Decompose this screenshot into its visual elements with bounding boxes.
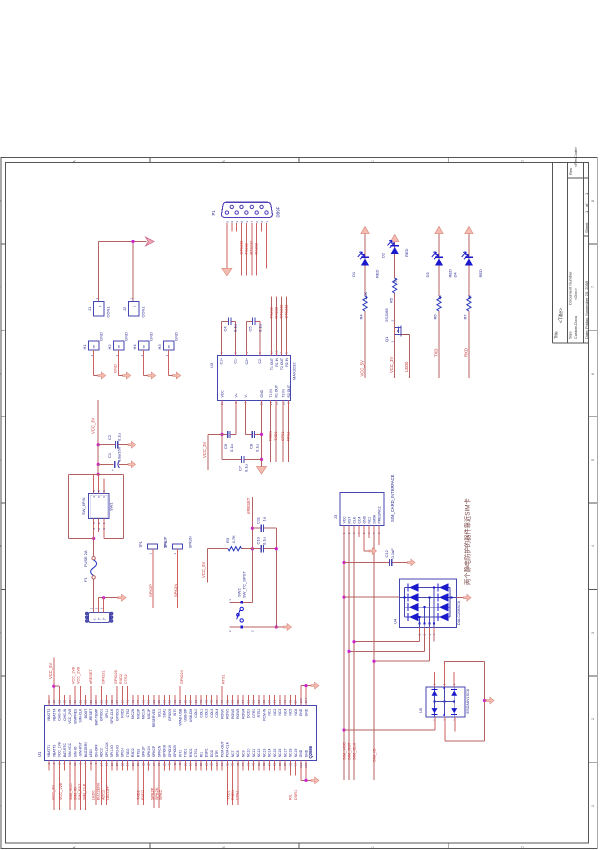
svg-text:D2: D2 (380, 252, 385, 258)
svg-text:SPK2N: SPK2N (189, 536, 193, 548)
svg-text:Custom-Docu: Custom-Docu (574, 316, 578, 339)
svg-text:LED0: LED0 (89, 749, 93, 758)
svg-text:U5: U5 (418, 707, 423, 713)
svg-text:H3: H3 (157, 344, 162, 350)
svg-text:NC1: NC1 (268, 709, 272, 716)
svg-text:BOOT: BOOT (84, 709, 88, 719)
svg-text:NC1: NC1 (367, 517, 371, 524)
svg-text:R6: R6 (433, 314, 438, 320)
svg-text:≡: ≡ (92, 618, 96, 620)
svg-text:1K: 1K (393, 278, 398, 283)
svg-text:CON1: CON1 (106, 306, 111, 318)
svg-text:VCC_1V8: VCC_1V8 (58, 742, 62, 757)
svg-text:CTS2: CTS2 (124, 674, 128, 684)
svg-text:8: 8 (0, 200, 2, 202)
svg-text:GPIO24: GPIO24 (180, 670, 184, 684)
svg-text:ADC2: ADC2 (102, 790, 106, 800)
svg-text:F1: F1 (83, 577, 88, 582)
svg-text:7: 7 (591, 286, 595, 288)
svg-text:VCC_5V: VCC_5V (48, 663, 53, 679)
svg-text:C2-: C2- (258, 358, 262, 363)
svg-text:LED0: LED0 (404, 361, 409, 372)
svg-text:U4: U4 (392, 618, 397, 624)
svg-text:C5: C5 (248, 326, 253, 332)
svg-text:ADC2: ADC2 (100, 748, 104, 757)
svg-text:SW_TC_SPST: SW_TC_SPST (242, 571, 247, 598)
svg-text:7: 7 (0, 286, 2, 288)
svg-text:NC3: NC3 (278, 709, 282, 716)
svg-text:SPKCP: SPKCP (152, 745, 156, 757)
svg-text:MIC2P: MIC2P (136, 708, 140, 719)
svg-text:DCD: DCD (210, 749, 214, 757)
svg-text:MAX3232: MAX3232 (291, 362, 296, 380)
svg-text:SPK2P: SPK2P (151, 787, 155, 800)
svg-text:NC4: NC4 (283, 709, 287, 716)
svg-text:RTS1: RTS1 (257, 709, 261, 718)
svg-text:T2 IN: T2 IN (282, 389, 286, 398)
svg-text:CTS1: CTS1 (281, 431, 285, 441)
svg-text:SPK1N: SPK1N (147, 746, 151, 758)
svg-text:VCC_2V8: VCC_2V8 (77, 667, 81, 684)
svg-text:GPIO21: GPIO21 (101, 670, 105, 684)
svg-text:Document Number: Document Number (568, 271, 573, 305)
svg-text:C1: C1 (107, 452, 112, 458)
svg-text:GPIO01: GPIO01 (100, 709, 104, 721)
svg-text:1: 1 (0, 805, 2, 807)
svg-text:GND: GND (299, 749, 303, 757)
svg-text:SDA1: SDA1 (163, 709, 167, 718)
svg-text:GPIO25: GPIO25 (173, 745, 177, 757)
svg-text:USB-DM: USB-DM (189, 709, 193, 723)
svg-text:T2 OUT: T2 OUT (280, 358, 284, 370)
svg-text:R1 OUT: R1 OUT (275, 385, 279, 397)
svg-text:TP: TP (117, 345, 121, 349)
svg-text:GND: GND (124, 332, 129, 341)
svg-text:TP2: TP2 (164, 541, 168, 548)
svg-text:0.1u: 0.1u (254, 444, 259, 452)
svg-text:U3: U3 (209, 362, 214, 368)
svg-text:VCC_2V8: VCC_2V8 (68, 709, 72, 724)
svg-text:C6: C6 (223, 443, 228, 449)
svg-text:GND: GND (174, 332, 179, 341)
svg-text:nRESET: nRESET (89, 669, 93, 684)
svg-text:SPK2P: SPK2P (148, 584, 153, 597)
svg-text:T1 OUT: T1 OUT (270, 358, 274, 370)
svg-text:NC9: NC9 (241, 750, 245, 757)
svg-text:H1: H1 (82, 344, 87, 350)
svg-text:TXD: TXD (434, 349, 439, 357)
svg-text:GND: GND (304, 708, 308, 716)
svg-text:DTR: DTR (215, 750, 219, 758)
svg-text:ROW1: ROW1 (226, 709, 230, 719)
svg-text:C1-: C1- (234, 358, 238, 363)
svg-text:RX232: RX232 (274, 307, 278, 319)
svg-text:D: D (520, 160, 524, 163)
svg-text:SIMPRES: SIMPRES (73, 708, 77, 724)
svg-text:SIM_CLK: SIM_CLK (352, 743, 357, 760)
svg-text:NC7: NC7 (231, 750, 235, 757)
svg-text:RESERVED: RESERVED (152, 708, 156, 727)
svg-text:CHG-IN: CHG-IN (63, 708, 67, 721)
svg-text:INT0: INT0 (173, 709, 177, 716)
svg-text:VCC_3V: VCC_3V (389, 357, 394, 373)
svg-text:CTS1: CTS1 (194, 749, 198, 758)
svg-text:DSR1: DSR1 (294, 790, 298, 800)
svg-text:4: 4 (591, 545, 595, 547)
svg-text:TXD2: TXD2 (137, 790, 141, 800)
svg-text:RED: RED (404, 248, 409, 257)
svg-text:SIM_IO: SIM_IO (372, 748, 377, 762)
svg-text:NC12: NC12 (257, 749, 261, 758)
svg-text:D3: D3 (425, 272, 430, 278)
svg-text:TXD1: TXD1 (184, 749, 188, 758)
svg-text:U1: U1 (37, 751, 42, 757)
svg-text:GPIO03: GPIO03 (115, 709, 119, 721)
svg-text:0.1u: 0.1u (244, 464, 249, 472)
svg-text:SCL1: SCL1 (157, 709, 161, 718)
svg-text:GND: GND (99, 332, 104, 341)
svg-text:CHG-IN: CHG-IN (58, 708, 62, 721)
svg-text:SIM-VCC: SIM-VCC (68, 742, 72, 757)
svg-text:SPK2N: SPK2N (173, 584, 178, 597)
svg-text:NC8: NC8 (236, 750, 240, 757)
svg-text:C4: C4 (222, 326, 227, 332)
svg-text:SIM-IO: SIM-IO (73, 746, 77, 757)
svg-text:NC11: NC11 (252, 749, 256, 758)
svg-text:C12: C12 (384, 549, 389, 557)
svg-text:ROW4: ROW4 (241, 709, 245, 719)
svg-text:2SJ168: 2SJ168 (384, 308, 389, 322)
svg-text:GND: GND (304, 749, 308, 757)
svg-text:R2 OUT: R2 OUT (287, 385, 291, 397)
svg-text:CC4: CC4 (357, 517, 361, 524)
svg-text:SIM_RST: SIM_RST (78, 783, 82, 800)
svg-text:0.1u: 0.1u (261, 537, 266, 545)
svg-text:RXD2: RXD2 (121, 709, 125, 718)
svg-text:MIC2N: MIC2N (131, 708, 135, 719)
svg-text:4.7K: 4.7K (231, 535, 236, 544)
svg-text:COL3: COL3 (210, 709, 214, 718)
svg-text:NC16: NC16 (278, 749, 282, 758)
svg-text:COL2: COL2 (205, 709, 209, 718)
svg-text:COL4: COL4 (215, 709, 219, 718)
svg-text:SIM_IO: SIM_IO (74, 787, 78, 800)
svg-text:T1 IN: T1 IN (269, 389, 273, 398)
svg-text:MIC1N: MIC1N (142, 708, 146, 719)
svg-text:USB-DP: USB-DP (184, 708, 188, 722)
svg-text:VPAD-USB: VPAD-USB (178, 708, 182, 726)
svg-text:GND: GND (299, 708, 303, 716)
svg-text:SPI1-I: SPI1-I (105, 709, 109, 718)
svg-text:Sheet: Sheet (584, 222, 589, 233)
svg-text:SPKCN: SPKCN (157, 745, 161, 757)
svg-text:0.1u: 0.1u (229, 444, 234, 452)
svg-text:Friday, November 20, 2009: Friday, November 20, 2009 (584, 280, 589, 329)
svg-text:VCC_3V: VCC_3V (91, 418, 96, 434)
svg-text:-SIM-RST: -SIM-RST (79, 742, 83, 757)
svg-text:GPIO08: GPIO08 (163, 745, 167, 757)
svg-text:NC13: NC13 (262, 749, 266, 758)
svg-text:SPI2-I: SPI2-I (121, 748, 125, 757)
svg-text:VCC: VCC (342, 516, 346, 524)
svg-text:1K: 1K (467, 295, 472, 300)
svg-text:2: 2 (0, 718, 2, 720)
svg-text:C2: C2 (107, 434, 112, 440)
svg-text:-RESET: -RESET (89, 709, 93, 721)
svg-text:R1 IN: R1 IN (275, 357, 279, 366)
svg-text:SIM_CLK: SIM_CLK (83, 783, 87, 800)
svg-text:ESDA6V1SC6: ESDA6V1SC6 (466, 689, 470, 713)
svg-text:SPKC: SPKC (159, 789, 163, 800)
svg-text:10u/16V: 10u/16V (116, 446, 121, 461)
svg-text:RTS1: RTS1 (221, 674, 225, 684)
svg-text:VBATT2: VBATT2 (47, 709, 51, 722)
svg-text:SW2: SW2 (236, 588, 241, 597)
svg-text:0.1u: 0.1u (258, 324, 263, 332)
svg-text:CLK: CLK (352, 516, 356, 523)
svg-text:CON1: CON1 (141, 306, 146, 318)
svg-text:TP: TP (142, 345, 146, 349)
svg-text:C8: C8 (248, 443, 253, 449)
svg-text:VCC_5V: VCC_5V (360, 360, 365, 376)
svg-text:R5: R5 (388, 297, 393, 303)
svg-text:TP: TP (92, 345, 96, 349)
svg-text:SPI2-IO: SPI2-IO (115, 745, 119, 757)
svg-text:TX232: TX232 (269, 307, 273, 318)
svg-text:INT1: INT1 (178, 750, 182, 757)
svg-text:R2 IN: R2 IN (285, 357, 289, 366)
svg-text:ROW0: ROW0 (220, 709, 224, 719)
svg-text:SPI1-CLK: SPI1-CLK (105, 741, 109, 757)
svg-text:C10: C10 (255, 536, 260, 544)
svg-text:BUZZER0: BUZZER0 (84, 742, 88, 758)
svg-text:DATA: DATA (372, 514, 376, 523)
svg-text:V-: V- (244, 394, 248, 397)
svg-text:NC19: NC19 (294, 749, 298, 758)
svg-text:DB9F: DB9F (276, 206, 281, 217)
svg-text:RXD1: RXD1 (231, 790, 235, 800)
svg-text:RST: RST (347, 517, 351, 524)
svg-text:nRESET: nRESET (246, 497, 251, 514)
svg-text:SPI2-CLK: SPI2-CLK (110, 708, 114, 724)
svg-text:6: 6 (0, 373, 2, 375)
svg-text:SPI1-IO: SPI1-IO (110, 745, 114, 757)
svg-text:BAT-RTC: BAT-RTC (63, 743, 67, 758)
svg-text:GND: GND (362, 515, 366, 523)
svg-text:NC15: NC15 (273, 749, 277, 758)
svg-text:8: 8 (591, 200, 595, 202)
svg-text:RXD1: RXD1 (269, 431, 273, 441)
svg-text:PCM-CLK: PCM-CLK (226, 741, 230, 757)
svg-text:P1: P1 (211, 210, 216, 216)
svg-text:NC14: NC14 (268, 749, 272, 758)
svg-text:TXD1: TXD1 (274, 431, 278, 441)
svg-text:GPIO09: GPIO09 (168, 709, 172, 721)
svg-text:VBATT3: VBATT3 (52, 745, 56, 758)
svg-text:TXD1: TXD1 (227, 790, 231, 800)
svg-text:C1+: C1+ (220, 358, 224, 364)
svg-text:RTS1: RTS1 (286, 431, 290, 441)
svg-text:NC17: NC17 (283, 749, 287, 758)
svg-text:<Title>: <Title> (559, 308, 565, 323)
svg-text:C11: C11 (255, 516, 260, 524)
svg-text:BUZZER0: BUZZER0 (97, 783, 101, 800)
svg-text:(+: (+ (97, 617, 101, 620)
svg-text:5: 5 (0, 459, 2, 461)
svg-text:<Doc>: <Doc> (573, 288, 578, 300)
svg-text:C: C (371, 160, 375, 163)
svg-text:4: 4 (0, 545, 2, 547)
svg-text:Q2686: Q2686 (308, 745, 313, 758)
svg-text:VCC_5V: VCC_5V (201, 562, 206, 578)
svg-text:RTS2: RTS2 (136, 749, 140, 758)
svg-text:ROW2: ROW2 (231, 709, 235, 719)
svg-text:SIM_CARD_INTERFACE: SIM_CARD_INTERFACE (390, 474, 395, 522)
svg-text:CTS2: CTS2 (126, 709, 130, 718)
svg-text:1: 1 (591, 805, 595, 807)
svg-text:TP: TP (167, 345, 171, 349)
svg-text:DSR1: DSR1 (205, 748, 209, 757)
svg-text:NC6: NC6 (294, 709, 298, 716)
svg-text:R4: R4 (359, 314, 364, 320)
svg-text:CTS232: CTS232 (284, 305, 288, 319)
svg-text:5: 5 (591, 459, 595, 461)
svg-text:1u: 1u (261, 517, 266, 521)
svg-text:GND: GND (149, 332, 154, 341)
svg-text:Rev: Rev (568, 168, 573, 175)
svg-text:RTS232: RTS232 (279, 305, 283, 319)
svg-text:V+: V+ (234, 393, 238, 397)
svg-text:PCM-IN: PCM-IN (262, 708, 266, 721)
svg-text:0.1uF: 0.1uF (390, 548, 395, 559)
svg-text:DCD1: DCD1 (247, 709, 251, 718)
svg-text:SIM_VCC: SIM_VCC (69, 783, 73, 800)
svg-text:PCM-OUT: PCM-OUT (220, 741, 224, 757)
svg-text:Q1: Q1 (384, 336, 389, 342)
svg-text:C2+: C2+ (245, 358, 249, 364)
svg-text:Date:: Date: (584, 329, 589, 339)
svg-text:MIC1P: MIC1P (147, 708, 151, 719)
svg-text:NC2: NC2 (273, 709, 277, 716)
svg-text:VCC_1V8: VCC_1V8 (72, 667, 76, 684)
svg-text:R7: R7 (463, 314, 468, 320)
svg-text:DTR1: DTR1 (252, 709, 256, 718)
svg-text:0.1u: 0.1u (116, 433, 121, 441)
svg-text:ON-OFF: ON-OFF (106, 785, 110, 800)
svg-text:VCC_3V: VCC_3V (52, 785, 56, 800)
svg-text:3: 3 (591, 632, 595, 634)
svg-text:ON-OFF: ON-OFF (94, 744, 98, 757)
svg-text:LED0: LED0 (92, 791, 96, 801)
svg-text:Title: Title (554, 331, 559, 339)
svg-text:CTS1: CTS1 (236, 790, 240, 800)
svg-text:H2: H2 (107, 344, 112, 350)
svg-text:RI1: RI1 (289, 794, 293, 800)
svg-text:D: D (520, 846, 524, 849)
svg-text:H4: H4 (132, 344, 137, 350)
svg-text:R3: R3 (225, 537, 230, 543)
svg-text:RXD1: RXD1 (189, 748, 193, 757)
svg-text:(+: (+ (102, 617, 106, 620)
svg-text:RX232: RX232 (255, 243, 259, 255)
svg-text:2: 2 (591, 718, 595, 720)
svg-text:PRES/NC2: PRES/NC2 (377, 506, 381, 523)
svg-text:FUSE 2A: FUSE 2A (83, 550, 88, 567)
svg-text:GPIO19: GPIO19 (168, 745, 172, 757)
svg-text:6: 6 (591, 373, 595, 375)
svg-text:GND: GND (260, 389, 264, 397)
svg-text:<RevCode>: <RevCode> (574, 146, 578, 167)
svg-text:GPIO26: GPIO26 (114, 670, 118, 684)
svg-text:DALC208SC6: DALC208SC6 (457, 601, 461, 625)
svg-text:VCC_1V8: VCC_1V8 (59, 783, 63, 800)
svg-text:D1: D1 (351, 271, 356, 277)
svg-text:SIM-CLK: SIM-CLK (79, 708, 83, 722)
svg-text:VCC_3V: VCC_3V (202, 442, 207, 458)
svg-text:COL1: COL1 (199, 709, 203, 718)
svg-text:RXD2: RXD2 (131, 748, 135, 757)
svg-text:ROW3: ROW3 (236, 709, 240, 719)
svg-text:VCC: VCC (220, 390, 224, 398)
svg-text:TP1: TP1 (139, 541, 143, 548)
svg-text:TX232: TX232 (244, 243, 248, 254)
svg-text:D4: D4 (452, 272, 457, 278)
svg-text:Size: Size (568, 330, 573, 339)
svg-text:两个静电防护的器件靠近SIM卡: 两个静电防护的器件靠近SIM卡 (463, 498, 472, 585)
svg-text:RTS232: RTS232 (250, 241, 254, 255)
svg-text:RED: RED (375, 269, 380, 278)
svg-text:TXD2: TXD2 (126, 749, 130, 758)
svg-text:VBATT4: VBATT4 (52, 709, 56, 722)
svg-text:0.1u: 0.1u (232, 324, 237, 332)
svg-text:NC18: NC18 (289, 749, 293, 758)
svg-text:1K: 1K (437, 295, 442, 300)
svg-text:C: C (371, 846, 375, 849)
svg-text:COL0: COL0 (194, 709, 198, 718)
svg-text:SPK1P: SPK1P (142, 746, 146, 758)
svg-text:BAT-TEMP: BAT-TEMP (94, 708, 98, 725)
svg-text:RXD: RXD (464, 348, 469, 357)
svg-text:GND: GND (112, 364, 117, 373)
svg-text:CTS232: CTS232 (239, 241, 243, 255)
svg-text:RXD2: RXD2 (119, 674, 123, 684)
svg-text:SW1: SW1 (109, 502, 114, 511)
svg-text:SW_6PIN: SW_6PIN (81, 497, 86, 515)
svg-text:NC5: NC5 (289, 709, 293, 716)
svg-text:NC10: NC10 (247, 749, 251, 758)
svg-text:3: 3 (0, 632, 2, 634)
svg-text:1.5K: 1.5K (363, 291, 368, 300)
svg-text:RXD2: RXD2 (141, 790, 145, 800)
svg-text:RED: RED (478, 269, 483, 278)
svg-text:RI1: RI1 (199, 752, 203, 757)
svg-text:VBATT1: VBATT1 (47, 745, 51, 758)
svg-text:C7: C7 (238, 465, 243, 471)
